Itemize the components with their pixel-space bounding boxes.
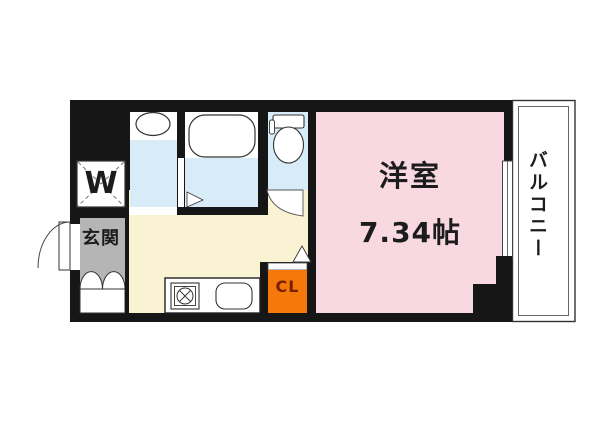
western-room-size-label: 7.34帖 [316, 211, 504, 251]
washroom-wet-floor [130, 140, 177, 207]
toilet-flush-handle [270, 120, 275, 134]
entrance-door-leaf [59, 222, 70, 270]
wall-bath-toilet [258, 112, 268, 215]
washer-slot-label: W [77, 161, 125, 207]
wall-pillar-corner [473, 284, 512, 314]
shoe-cabinet [80, 288, 125, 313]
washroom-door-opening [129, 207, 177, 215]
wall-pillar-step [496, 256, 512, 286]
floorplan-canvas: 洋室 7.34帖 バルコニー 玄関 W CL [0, 0, 600, 424]
kitchen-sink [216, 283, 252, 309]
western-room-label: 洋室 [316, 153, 504, 195]
balcony-label: バルコニー [523, 150, 551, 310]
closet-door-strip [268, 263, 307, 270]
toilet-bowl [274, 127, 304, 163]
toilet-tank [273, 115, 304, 128]
wall-bath-bottom [177, 207, 262, 215]
washbasin [136, 113, 170, 136]
bathroom-door-strip [178, 158, 184, 207]
closet-label: CL [268, 277, 307, 296]
bathtub [189, 115, 255, 157]
floorplan-drawing [0, 0, 600, 424]
wall-entrance-divider [125, 190, 129, 313]
entrance-label: 玄関 [76, 224, 126, 250]
